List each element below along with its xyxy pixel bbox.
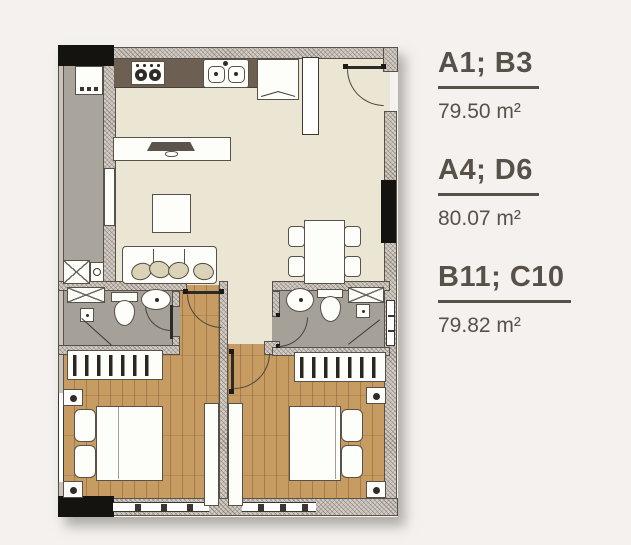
unit-codes: B11; C10 [438,260,571,303]
fridge-door-line [261,91,279,97]
dining-chair [288,226,305,247]
window-bedroom-2 [242,502,316,512]
unit-legend: A1; B3 79.50 m² A4; D6 80.07 m² B11; C10… [438,46,628,367]
unit-entry: A4; D6 80.07 m² [438,153,628,231]
unit-area: 79.50 m² [438,99,628,124]
sofa-cushion [191,261,215,282]
unit-entry: A1; B3 79.50 m² [438,46,628,124]
water-heater-unit [75,66,103,95]
pillow [341,409,363,442]
column-bottom-left [58,496,114,517]
window-left-wall [58,393,64,482]
window-mullion [135,504,141,511]
sink-faucet [223,61,228,66]
fridge-door-line [278,91,296,97]
fan-circle [93,268,101,276]
sofa-cushion [167,260,191,280]
nightstand [63,389,83,406]
unit-area: 79.82 m² [438,313,628,338]
window-mullion [388,315,394,317]
window-mullion [161,504,167,511]
washbasin [286,288,314,312]
lamp [373,487,380,494]
double-bed [289,406,341,481]
exhaust-fan-unit [90,262,104,282]
unit-area: 80.07 m² [438,206,628,231]
stove-knob [157,64,160,67]
unit-vent [80,87,84,91]
wardrobe [67,350,163,380]
balcony-door [104,168,115,226]
wardrobe-hanging-rail [73,355,157,376]
pillow [341,445,363,478]
nightstand [63,481,83,498]
basin-drain [299,298,303,302]
tv-console [113,137,231,161]
dining-chair [344,226,361,247]
entry-partition-wall [302,57,319,135]
wall-bathroom-1-right-a [172,291,180,307]
sink-drain [234,72,238,76]
stove-knob [136,64,139,67]
nightstand [366,481,386,498]
basin-drain [155,298,159,302]
kitchen-sink [203,59,249,88]
tv-stand [165,151,178,157]
drain-dot [86,314,89,317]
window-mullion [280,504,286,511]
pillow [74,409,96,442]
lamp [70,395,77,402]
dining-chair [288,256,305,277]
window-mullion [388,330,394,332]
dining-chair [344,256,361,277]
pillow [74,445,96,478]
unit-codes: A4; D6 [438,153,539,196]
column-top-left [58,45,114,66]
shaft-right [381,180,396,243]
sofa [122,246,217,284]
stove-knob [150,64,153,67]
window-bedroom-1 [113,502,209,512]
wardrobe [294,352,386,382]
floor-plan-canvas: A1; B3 79.50 m² A4; D6 80.07 m² B11; C10… [0,0,631,545]
unit-vent [94,87,98,91]
lamp [373,393,380,400]
door-hinge [229,389,234,394]
blanket-fold-line [118,407,119,479]
stove-cooktop [131,61,165,85]
window-right-wall [386,300,395,346]
window-mullion [187,504,193,511]
shower-tray [348,287,384,303]
stove-burner [135,69,147,81]
unit-vent [87,87,91,91]
double-bed [96,406,163,481]
washing-machine [63,260,90,284]
lamp [70,487,77,494]
unit-entry: B11; C10 79.82 m² [438,260,628,338]
wardrobe-hanging-rail [300,357,380,378]
nightstand [366,387,386,404]
desk [204,403,219,506]
sink-drain [214,72,218,76]
blanket-fold-line [335,407,336,479]
washbasin [141,289,171,310]
shower-mixer [356,304,370,318]
desk [228,403,243,506]
window-mullion [258,504,264,511]
tv [147,142,195,151]
shower-tray [67,287,105,303]
coffee-table [152,194,191,233]
window-mullion [302,504,308,511]
unit-codes: A1; B3 [438,46,539,89]
dining-table [304,220,345,284]
stove-burner [149,69,161,81]
drain-dot [362,310,365,313]
stove-knob [143,64,146,67]
fridge [257,59,299,100]
